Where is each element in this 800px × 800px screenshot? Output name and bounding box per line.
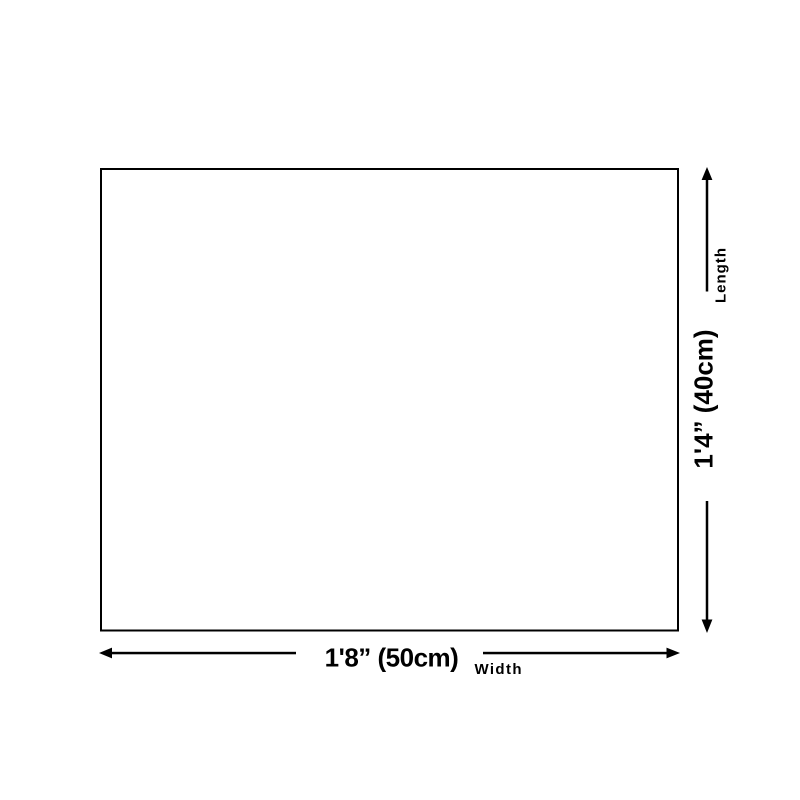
svg-text:1'8” (50cm): 1'8” (50cm) xyxy=(325,642,459,672)
svg-text:Width: Width xyxy=(474,661,523,678)
svg-text:Length: Length xyxy=(713,247,730,303)
svg-text:1'4” (40cm): 1'4” (40cm) xyxy=(689,329,719,468)
